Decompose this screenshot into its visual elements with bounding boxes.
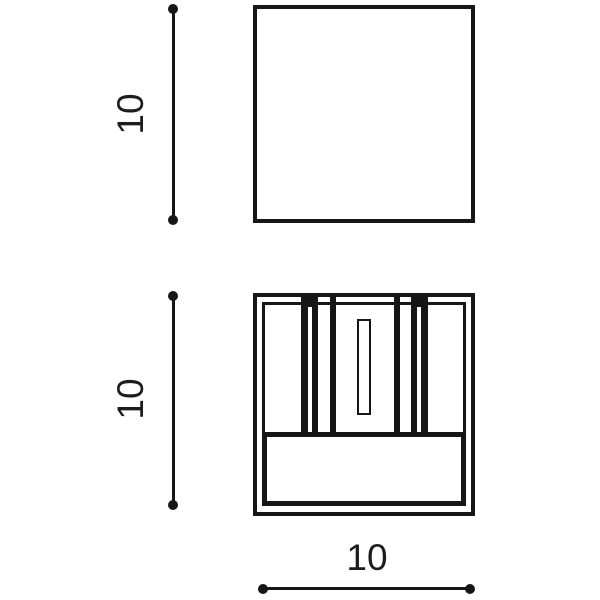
drawing-canvas: 10 10 10 bbox=[0, 0, 600, 600]
plan-height-dimension-line bbox=[172, 296, 175, 505]
plan-height-dimension-dot-bottom bbox=[168, 500, 178, 510]
front-height-dimension-dot-top bbox=[168, 4, 178, 14]
plan-width-dimension-label: 10 bbox=[342, 533, 392, 583]
plan-height-dimension-dot-top bbox=[168, 291, 178, 301]
lower-panel-box bbox=[262, 432, 466, 506]
front-height-dimension-label: 10 bbox=[106, 89, 156, 139]
front-height-dimension-line bbox=[172, 9, 175, 220]
plan-height-dimension-label: 10 bbox=[106, 374, 156, 424]
lamp-slot bbox=[357, 319, 371, 415]
lamp-box-left-edge bbox=[330, 296, 336, 434]
left-louver-gap bbox=[308, 307, 312, 434]
plan-width-dimension-line bbox=[262, 587, 470, 590]
plan-width-dimension-dot-right bbox=[465, 584, 475, 594]
lamp-box-right-edge bbox=[394, 296, 400, 434]
front-view-outline bbox=[253, 5, 475, 223]
right-louver-gap bbox=[417, 307, 421, 434]
front-height-dimension-dot-bottom bbox=[168, 215, 178, 225]
plan-width-dimension-dot-left bbox=[258, 584, 268, 594]
